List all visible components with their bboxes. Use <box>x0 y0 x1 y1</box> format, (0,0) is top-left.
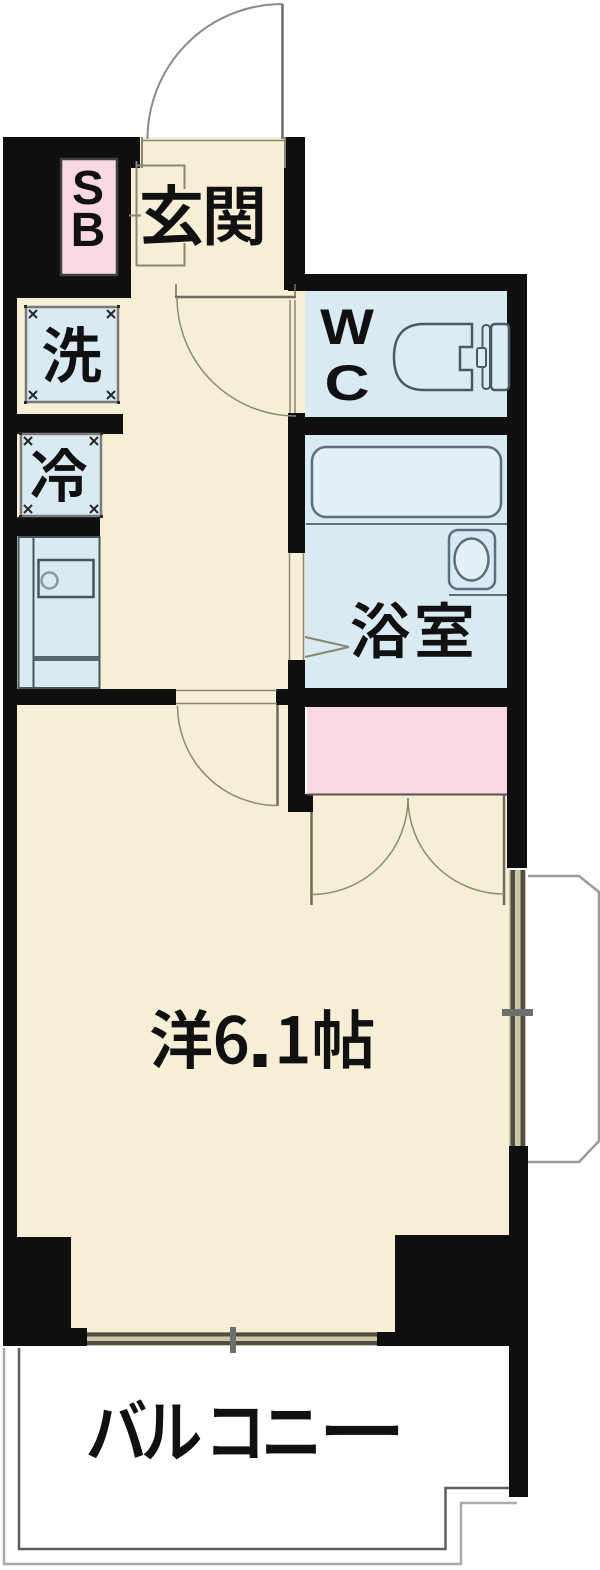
svg-text:C: C <box>324 355 369 411</box>
svg-text:B: B <box>71 204 106 257</box>
svg-text:W: W <box>320 299 374 355</box>
